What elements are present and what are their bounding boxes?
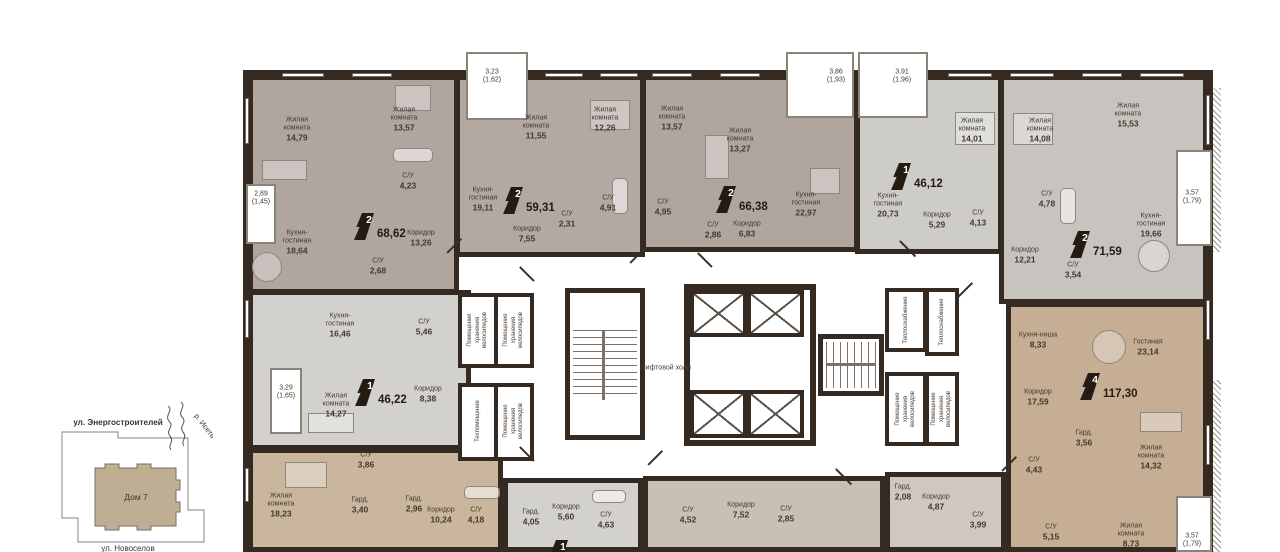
room-label: Жилая комната14,27 bbox=[314, 393, 358, 420]
apartment-flag: 259,31 bbox=[503, 187, 555, 214]
room-label: Жилая комната13,57 bbox=[650, 106, 694, 133]
room-label: Жилая комната8,73 bbox=[1109, 523, 1153, 550]
bed-icon bbox=[285, 462, 327, 488]
room-label: С/У4,95 bbox=[641, 199, 685, 218]
balcony-label: 3,91(1,96) bbox=[885, 69, 919, 86]
apartment-flag: 266,38 bbox=[716, 186, 768, 213]
window bbox=[1140, 73, 1184, 77]
table-icon bbox=[810, 168, 840, 194]
window bbox=[352, 73, 392, 77]
bed-icon bbox=[262, 160, 307, 180]
window bbox=[1206, 95, 1210, 145]
window bbox=[245, 98, 249, 144]
flag-icon: 2 bbox=[716, 186, 736, 213]
room-label: Кухня-гостиная19,11 bbox=[461, 187, 505, 214]
room-label: Гард.3,40 bbox=[338, 497, 382, 516]
room-label: Кухня-гостиная22,97 bbox=[784, 192, 828, 219]
room-label: С/У4,43 bbox=[1012, 457, 1056, 476]
room-label: Кухня-ниша8,33 bbox=[1016, 332, 1060, 351]
room-label: Коридор8,38 bbox=[406, 386, 450, 405]
elevator-shaft bbox=[747, 290, 804, 337]
flag-icon: 1 bbox=[891, 163, 911, 190]
room-label: Кухня-гостиная16,46 bbox=[318, 313, 362, 340]
room-label: С/У5,46 bbox=[402, 319, 446, 338]
room-label: С/У4,23 bbox=[386, 173, 430, 192]
bathtub-icon bbox=[592, 490, 626, 503]
flag-icon: 4 bbox=[1080, 373, 1100, 400]
street-top-label: ул. Энергостроителей bbox=[73, 418, 163, 427]
room-label: Кухня-гостиная20,73 bbox=[866, 193, 910, 220]
room-label: С/У4,52 bbox=[666, 507, 710, 526]
balcony-label: 3,23(1,62) bbox=[475, 69, 509, 86]
room-label: Жилая комната18,23 bbox=[259, 493, 303, 520]
room-label: С/У4,91 bbox=[586, 195, 630, 214]
window bbox=[245, 300, 249, 338]
room-label: Коридор6,83 bbox=[725, 221, 769, 240]
room-label: С/У3,54 bbox=[1051, 262, 1095, 281]
elevator-shaft bbox=[690, 290, 747, 337]
floor-plan-page: Жилая комната14,79 Жилая комната13,57 С/… bbox=[0, 0, 1280, 552]
balcony-hatch bbox=[1213, 380, 1221, 552]
door-line bbox=[519, 266, 534, 281]
apartment-flag: 268,62 bbox=[354, 213, 406, 240]
door-line bbox=[697, 252, 712, 267]
apartment-flag: 146,22 bbox=[355, 379, 407, 406]
room-label: С/У3,86 bbox=[344, 452, 388, 471]
apartment-flag: 271,59 bbox=[1070, 231, 1122, 258]
room-label: Жилая комната11,55 bbox=[514, 115, 558, 142]
window bbox=[1206, 300, 1210, 340]
room-label: С/У5,15 bbox=[1029, 524, 1073, 543]
window bbox=[1082, 73, 1122, 77]
heat-room-label: Теплоснабжение bbox=[903, 296, 909, 343]
door-line bbox=[957, 282, 972, 297]
building-label: Дом 7 bbox=[124, 492, 148, 502]
room-label: Коридор12,21 bbox=[1003, 247, 1047, 266]
balcony-label: 2,89(1,45) bbox=[244, 191, 278, 208]
room-label: С/У2,85 bbox=[764, 506, 808, 525]
heat-room-label: Теплоснабжение bbox=[939, 298, 945, 345]
room-label: С/У4,18 bbox=[454, 507, 498, 526]
stair-treads bbox=[573, 330, 637, 400]
room-label: Жилая комната14,32 bbox=[1129, 445, 1173, 472]
elevator-shaft bbox=[747, 390, 804, 438]
dining-table-icon bbox=[1092, 330, 1126, 364]
bike-storage-label: Помещение хранения велосипедов bbox=[931, 386, 954, 432]
room-label: Коридор17,59 bbox=[1016, 389, 1060, 408]
room-label: С/У4,63 bbox=[584, 512, 628, 531]
room-label: Жилая комната12,26 bbox=[583, 107, 627, 134]
stair-divider bbox=[602, 330, 605, 400]
room-label: Коридор7,55 bbox=[505, 226, 549, 245]
bike-storage-label: Помещение хранения велосипедов bbox=[467, 307, 490, 353]
bike-storage-label: Помещение хранения велосипедов bbox=[503, 307, 526, 353]
room-label: С/У4,13 bbox=[956, 210, 1000, 229]
balcony-label: 3,29(1,65) bbox=[269, 385, 303, 402]
room-label: Жилая комната14,01 bbox=[950, 118, 994, 145]
balcony bbox=[466, 52, 528, 120]
window bbox=[545, 73, 583, 77]
site-plan[interactable]: ул. Энергостроителей р. Исеть Дом 7 ул. … bbox=[48, 394, 233, 552]
window bbox=[1010, 73, 1054, 77]
room-label: Гостиная23,14 bbox=[1126, 339, 1170, 358]
flag-icon: 2 bbox=[354, 213, 374, 240]
room-label: Кухня-гостиная18,64 bbox=[275, 230, 319, 257]
room-label: С/У4,78 bbox=[1025, 191, 1069, 210]
balcony-label: 3,57(1,79) bbox=[1175, 190, 1209, 207]
apartment-flag: 4117,30 bbox=[1080, 373, 1138, 400]
room-label: Гард.3,56 bbox=[1062, 430, 1106, 449]
elevator-shaft bbox=[690, 390, 747, 438]
room-label: Жилая комната13,57 bbox=[382, 107, 426, 134]
door-line bbox=[647, 450, 662, 465]
dining-table-icon bbox=[252, 252, 282, 282]
bathtub-icon bbox=[393, 148, 433, 162]
street-bottom-label: ул. Новоселов bbox=[101, 544, 154, 552]
tech-room-label: Техпомещение bbox=[475, 400, 481, 442]
flag-icon: 1 bbox=[355, 379, 375, 406]
room-label: Коридор7,52 bbox=[719, 502, 763, 521]
apartment-flag: 146,12 bbox=[891, 163, 943, 190]
apartment-flag: 1 bbox=[548, 540, 568, 552]
window bbox=[948, 73, 992, 77]
room-label: Коридор4,87 bbox=[914, 494, 958, 513]
window bbox=[282, 73, 324, 77]
bike-storage-label: Помещение хранения велосипедов bbox=[895, 386, 918, 432]
room-label: Жилая комната13,27 bbox=[718, 128, 762, 155]
window bbox=[600, 73, 638, 77]
dining-table-icon bbox=[1138, 240, 1170, 272]
bed-icon bbox=[1140, 412, 1182, 432]
bike-storage-label: Помещение хранения велосипедов bbox=[503, 398, 526, 444]
window bbox=[1206, 425, 1210, 465]
balcony-hatch bbox=[1213, 88, 1221, 252]
room-label: Кухня-гостиная19,66 bbox=[1129, 213, 1173, 240]
window bbox=[720, 73, 760, 77]
window bbox=[245, 468, 249, 502]
room-label: Жилая комната14,08 bbox=[1018, 118, 1062, 145]
bathtub-icon bbox=[464, 486, 500, 499]
flag-icon: 1 bbox=[548, 540, 568, 552]
flag-icon: 2 bbox=[503, 187, 523, 214]
lift-hall-label: Лифтовой холл bbox=[641, 365, 691, 372]
room-label: С/У3,99 bbox=[956, 512, 1000, 531]
window bbox=[652, 73, 692, 77]
stair-divider bbox=[826, 363, 876, 366]
balcony-label: 3,86(1,93) bbox=[819, 69, 853, 86]
river-label: р. Исеть bbox=[192, 412, 217, 440]
room-label: Жилая комната15,53 bbox=[1106, 103, 1150, 130]
room-label: Коридор5,29 bbox=[915, 212, 959, 231]
flag-icon: 2 bbox=[1070, 231, 1090, 258]
balcony-label: 3,57(1,79) bbox=[1175, 533, 1209, 550]
room-label: Коридор5,60 bbox=[544, 504, 588, 523]
room-label: С/У2,68 bbox=[356, 258, 400, 277]
room-label: Жилая комната14,79 bbox=[275, 117, 319, 144]
